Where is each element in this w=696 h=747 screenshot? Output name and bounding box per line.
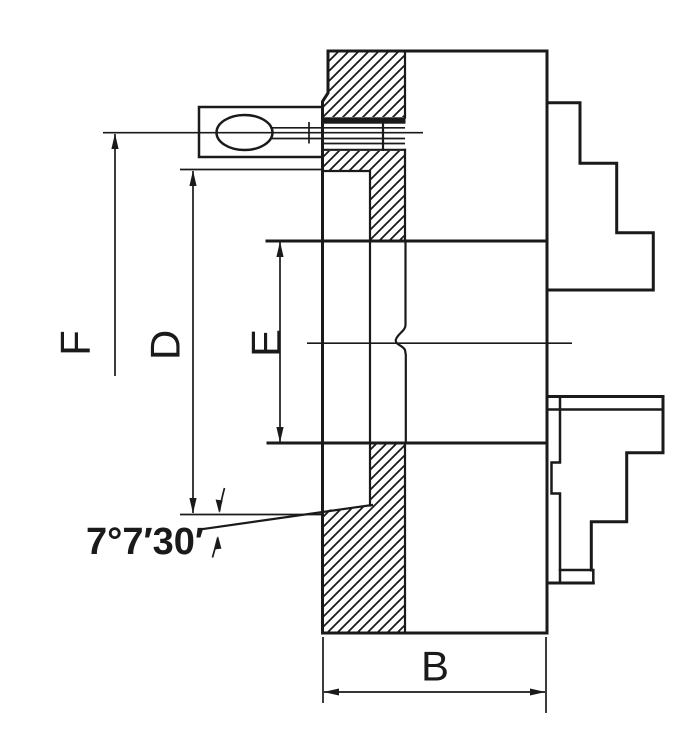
- chuck-cross-section-drawing: F D E B 7°7′30′: [0, 0, 696, 747]
- technical-drawing-canvas: F D E B 7°7′30′: [0, 0, 696, 747]
- f-arrow-up: [111, 134, 118, 150]
- d-arrow-up: [189, 171, 196, 187]
- partial-section-break-line: [396, 241, 406, 443]
- worm-screw-cap-bar: [323, 117, 406, 123]
- angle-arrow-lower: [214, 536, 221, 550]
- top-jaw-outline: [547, 103, 653, 290]
- angle-arrow-upper: [216, 500, 223, 514]
- d-label: D: [142, 330, 189, 360]
- bottom-jaw-outline: [547, 397, 663, 571]
- b-arrow-right: [530, 689, 546, 696]
- d-arrow-down: [189, 498, 196, 514]
- bottom-jaw-guide-edge: [552, 397, 561, 584]
- screw-thread-lines: [323, 128, 406, 144]
- e-arrow-down: [276, 427, 283, 443]
- recess-step-upper: [323, 171, 371, 241]
- b-label: B: [421, 643, 449, 690]
- bottom-jaw: [547, 397, 663, 584]
- dimension-e: E: [243, 242, 290, 443]
- hatch-upper-inner-block: [324, 151, 405, 240]
- taper-angle-annotation: 7°7′30′: [86, 488, 224, 563]
- hatch-upper-outer-block: [324, 53, 405, 118]
- f-label: F: [52, 330, 99, 356]
- top-jaw: [547, 103, 653, 290]
- dimension-d: D: [142, 170, 324, 515]
- b-arrow-left: [324, 689, 340, 696]
- dimension-b: B: [323, 637, 546, 713]
- bottom-jaw-tongue: [560, 570, 593, 583]
- hatch-lower-inner-block: [324, 444, 404, 632]
- e-label: E: [243, 329, 290, 357]
- taper-angle-label: 7°7′30′: [86, 521, 204, 563]
- dimension-f: F: [52, 134, 119, 377]
- e-arrow-up: [276, 242, 283, 258]
